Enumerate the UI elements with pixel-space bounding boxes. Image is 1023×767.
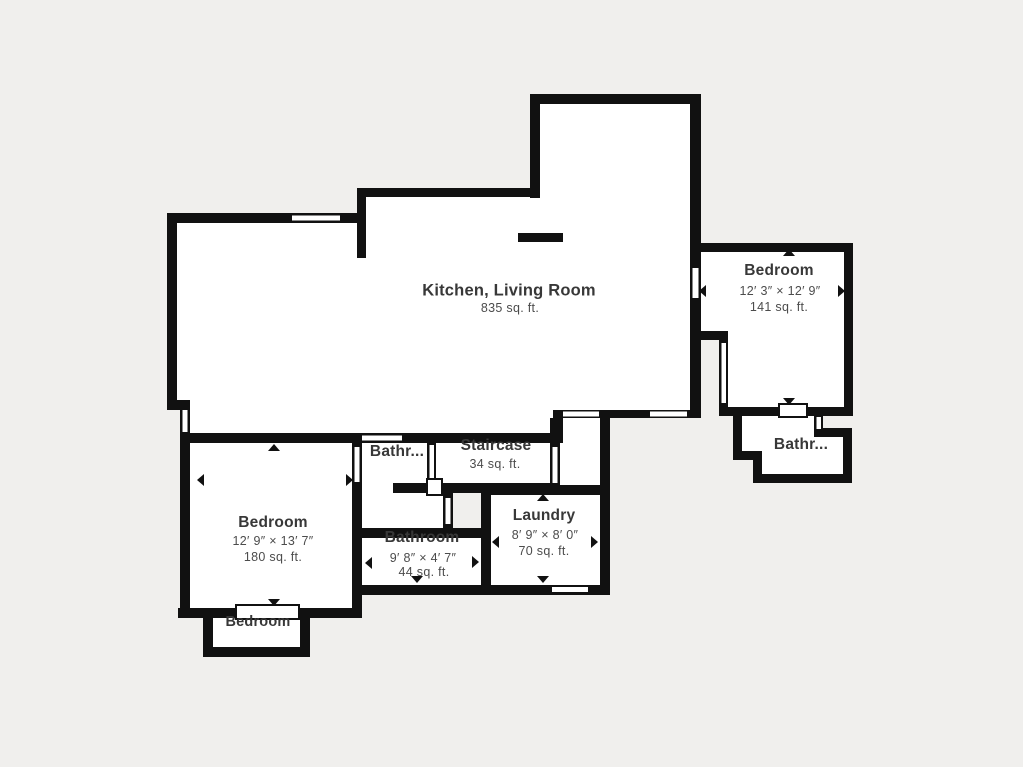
wall — [203, 647, 310, 657]
hallway[interactable] — [362, 493, 443, 528]
room-label-bathroom-middle-dims: 9′ 8″ × 4′ 7″ — [390, 551, 456, 565]
wall — [167, 213, 177, 410]
hallway-strip[interactable] — [362, 483, 393, 493]
room-label-bathroom-hall-name: Bathr... — [370, 443, 424, 461]
room-label-bedroom-left-dims: 12′ 9″ × 13′ 7″ — [233, 534, 314, 548]
room-label-kitchen-living-name: Kitchen, Living Room — [422, 282, 596, 301]
wall — [733, 413, 742, 455]
room-label-bathroom-middle-area: 44 sq. ft. — [399, 565, 450, 579]
wall — [357, 188, 366, 258]
wall — [753, 474, 852, 483]
room-label-bedroom-nook-name: Bedroom — [225, 614, 290, 630]
door-opening — [553, 447, 558, 483]
wall — [690, 243, 853, 252]
wall — [844, 243, 853, 416]
window — [650, 412, 687, 417]
room-label-laundry-name: Laundry — [513, 507, 576, 525]
wall — [180, 400, 190, 618]
window — [722, 343, 727, 403]
wall — [690, 94, 701, 418]
window — [362, 436, 402, 441]
room-label-bedroom-left-name: Bedroom — [238, 514, 307, 532]
window — [817, 417, 822, 429]
window — [693, 268, 699, 298]
door-opening — [446, 498, 451, 524]
door — [427, 479, 442, 495]
door — [779, 404, 807, 417]
kitchen-fixture-wall — [518, 233, 563, 242]
wall — [843, 428, 852, 483]
room-label-laundry-dims: 8′ 9″ × 8′ 0″ — [512, 528, 578, 542]
room-label-bedroom-left-area: 180 sq. ft. — [244, 550, 302, 564]
floorplan-drawing — [0, 0, 1023, 767]
room-label-bedroom-right-name: Bedroom — [744, 262, 813, 280]
room-label-bedroom-right-area: 141 sq. ft. — [750, 300, 808, 314]
wall — [352, 585, 491, 595]
room-label-kitchen-living-area: 835 sq. ft. — [481, 301, 539, 315]
wall — [600, 410, 610, 595]
wall — [530, 94, 540, 198]
wall — [481, 585, 610, 595]
wall — [481, 485, 610, 495]
window — [552, 587, 588, 592]
window — [183, 410, 188, 432]
wall — [300, 613, 310, 657]
window — [563, 412, 599, 417]
wall — [481, 488, 491, 595]
door-opening — [355, 447, 360, 482]
room-label-staircase-area: 34 sq. ft. — [470, 457, 521, 471]
wall — [357, 188, 540, 197]
room-label-bathroom-middle-name: Bathroom — [385, 529, 460, 547]
room-label-staircase-name: Staircase — [461, 437, 532, 455]
hallway-right[interactable] — [560, 418, 600, 485]
window — [292, 216, 340, 221]
room-label-laundry-area: 70 sq. ft. — [519, 544, 570, 558]
floorplan-canvas: Kitchen, Living Room 835 sq. ft. Bedroom… — [0, 0, 1023, 767]
room-label-bedroom-right-dims: 12′ 3″ × 12′ 9″ — [740, 284, 821, 298]
wall — [530, 94, 695, 104]
room-label-bathroom-right-name: Bathr... — [774, 436, 828, 454]
room-kitchen-living[interactable] — [177, 104, 690, 433]
